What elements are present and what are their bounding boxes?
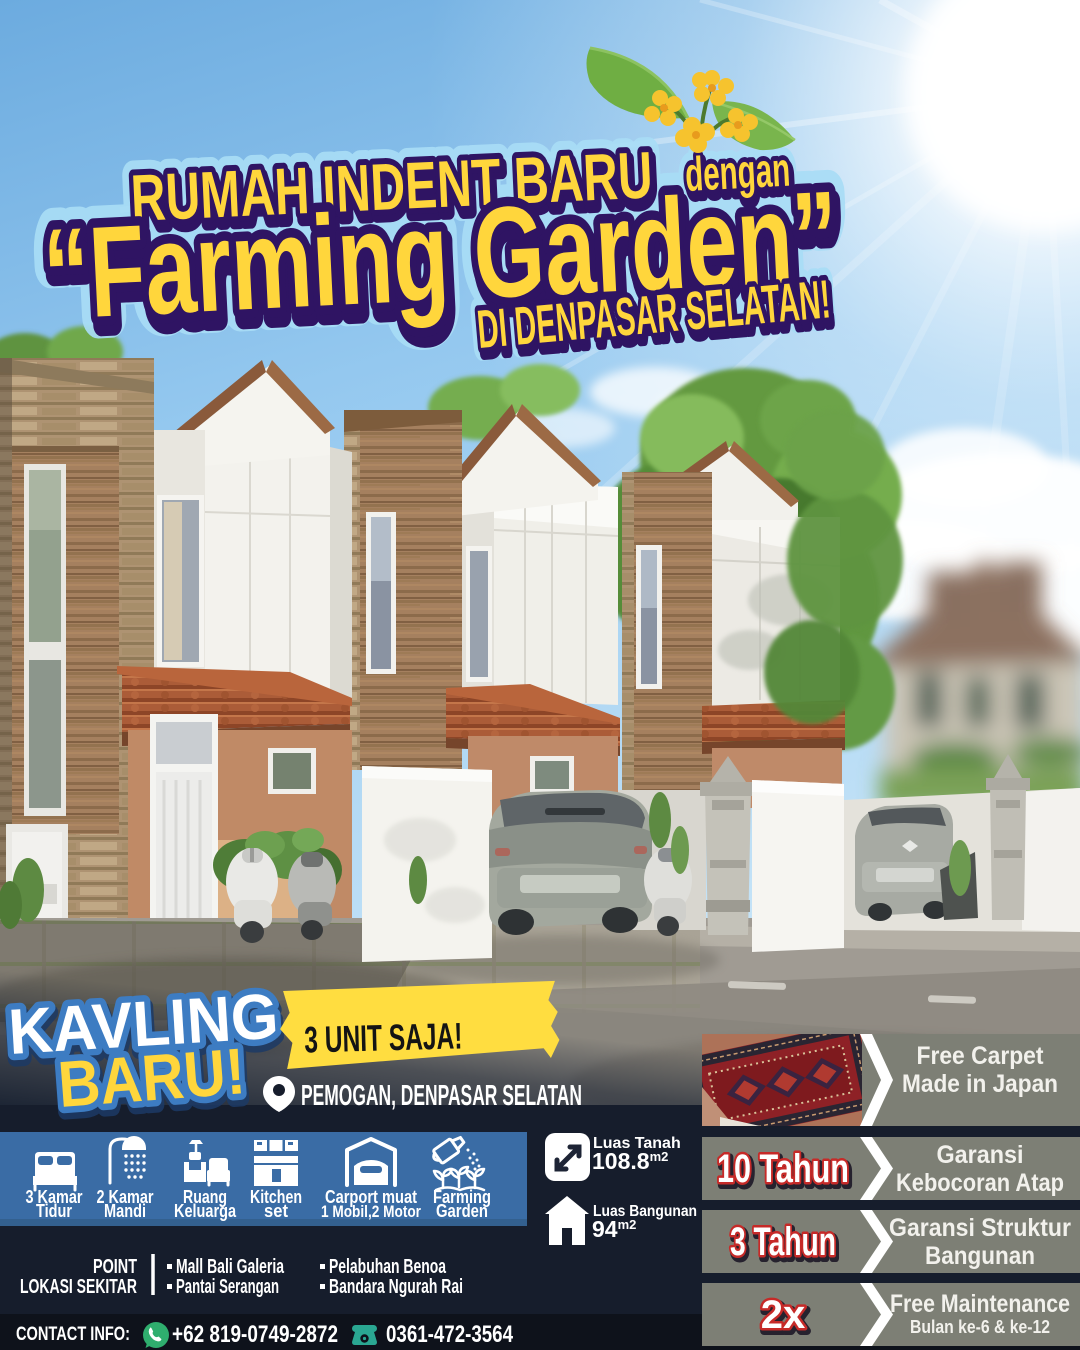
svg-text:Mall Bali Galeria: Mall Bali Galeria [176, 1256, 285, 1278]
svg-text:3 UNIT SAJA!: 3 UNIT SAJA! [304, 1015, 463, 1060]
svg-text:Bangunan: Bangunan [925, 1242, 1035, 1270]
svg-text:94m2: 94m2 [592, 1216, 636, 1242]
svg-text:Bandara Ngurah Rai: Bandara Ngurah Rai [329, 1276, 463, 1298]
svg-text:1 Mobil,2 Motor: 1 Mobil,2 Motor [321, 1202, 421, 1221]
svg-text:108.8m2: 108.8m2 [592, 1148, 668, 1174]
svg-text:Kebocoran Atap: Kebocoran Atap [896, 1169, 1064, 1197]
svg-text:10 Tahun: 10 Tahun [717, 1147, 849, 1191]
svg-text:Mandi: Mandi [104, 1200, 146, 1221]
svg-text:Made in Japan: Made in Japan [902, 1070, 1058, 1098]
svg-text:Garansi: Garansi [937, 1141, 1024, 1169]
svg-text:Keluarga: Keluarga [174, 1200, 237, 1221]
svg-text:LOKASI SEKITAR: LOKASI SEKITAR [20, 1276, 137, 1298]
svg-text:2x: 2x [761, 1293, 806, 1337]
svg-text:Free Maintenance: Free Maintenance [890, 1290, 1070, 1318]
svg-text:Tidur: Tidur [36, 1200, 72, 1221]
svg-text:Garansi Struktur: Garansi Struktur [889, 1214, 1071, 1242]
svg-text:Garden: Garden [436, 1200, 488, 1221]
svg-text:Pelabuhan Benoa: Pelabuhan Benoa [329, 1256, 447, 1278]
svg-text:Free Carpet: Free Carpet [917, 1042, 1045, 1070]
svg-text:CONTACT INFO:: CONTACT INFO: [16, 1324, 130, 1345]
svg-text:Pantai Serangan: Pantai Serangan [176, 1276, 279, 1298]
svg-text:PEMOGAN, DENPASAR SELATAN: PEMOGAN, DENPASAR SELATAN [301, 1080, 582, 1112]
svg-text:set: set [264, 1200, 288, 1221]
svg-text:POINT: POINT [93, 1256, 137, 1278]
svg-text:0361-472-3564: 0361-472-3564 [386, 1321, 514, 1348]
svg-text:+62 819-0749-2872: +62 819-0749-2872 [172, 1321, 338, 1348]
svg-text:3 Tahun: 3 Tahun [730, 1220, 836, 1264]
svg-text:BARU!: BARU! [56, 1034, 248, 1121]
svg-text:Bulan ke-6 & ke-12: Bulan ke-6 & ke-12 [910, 1317, 1050, 1337]
